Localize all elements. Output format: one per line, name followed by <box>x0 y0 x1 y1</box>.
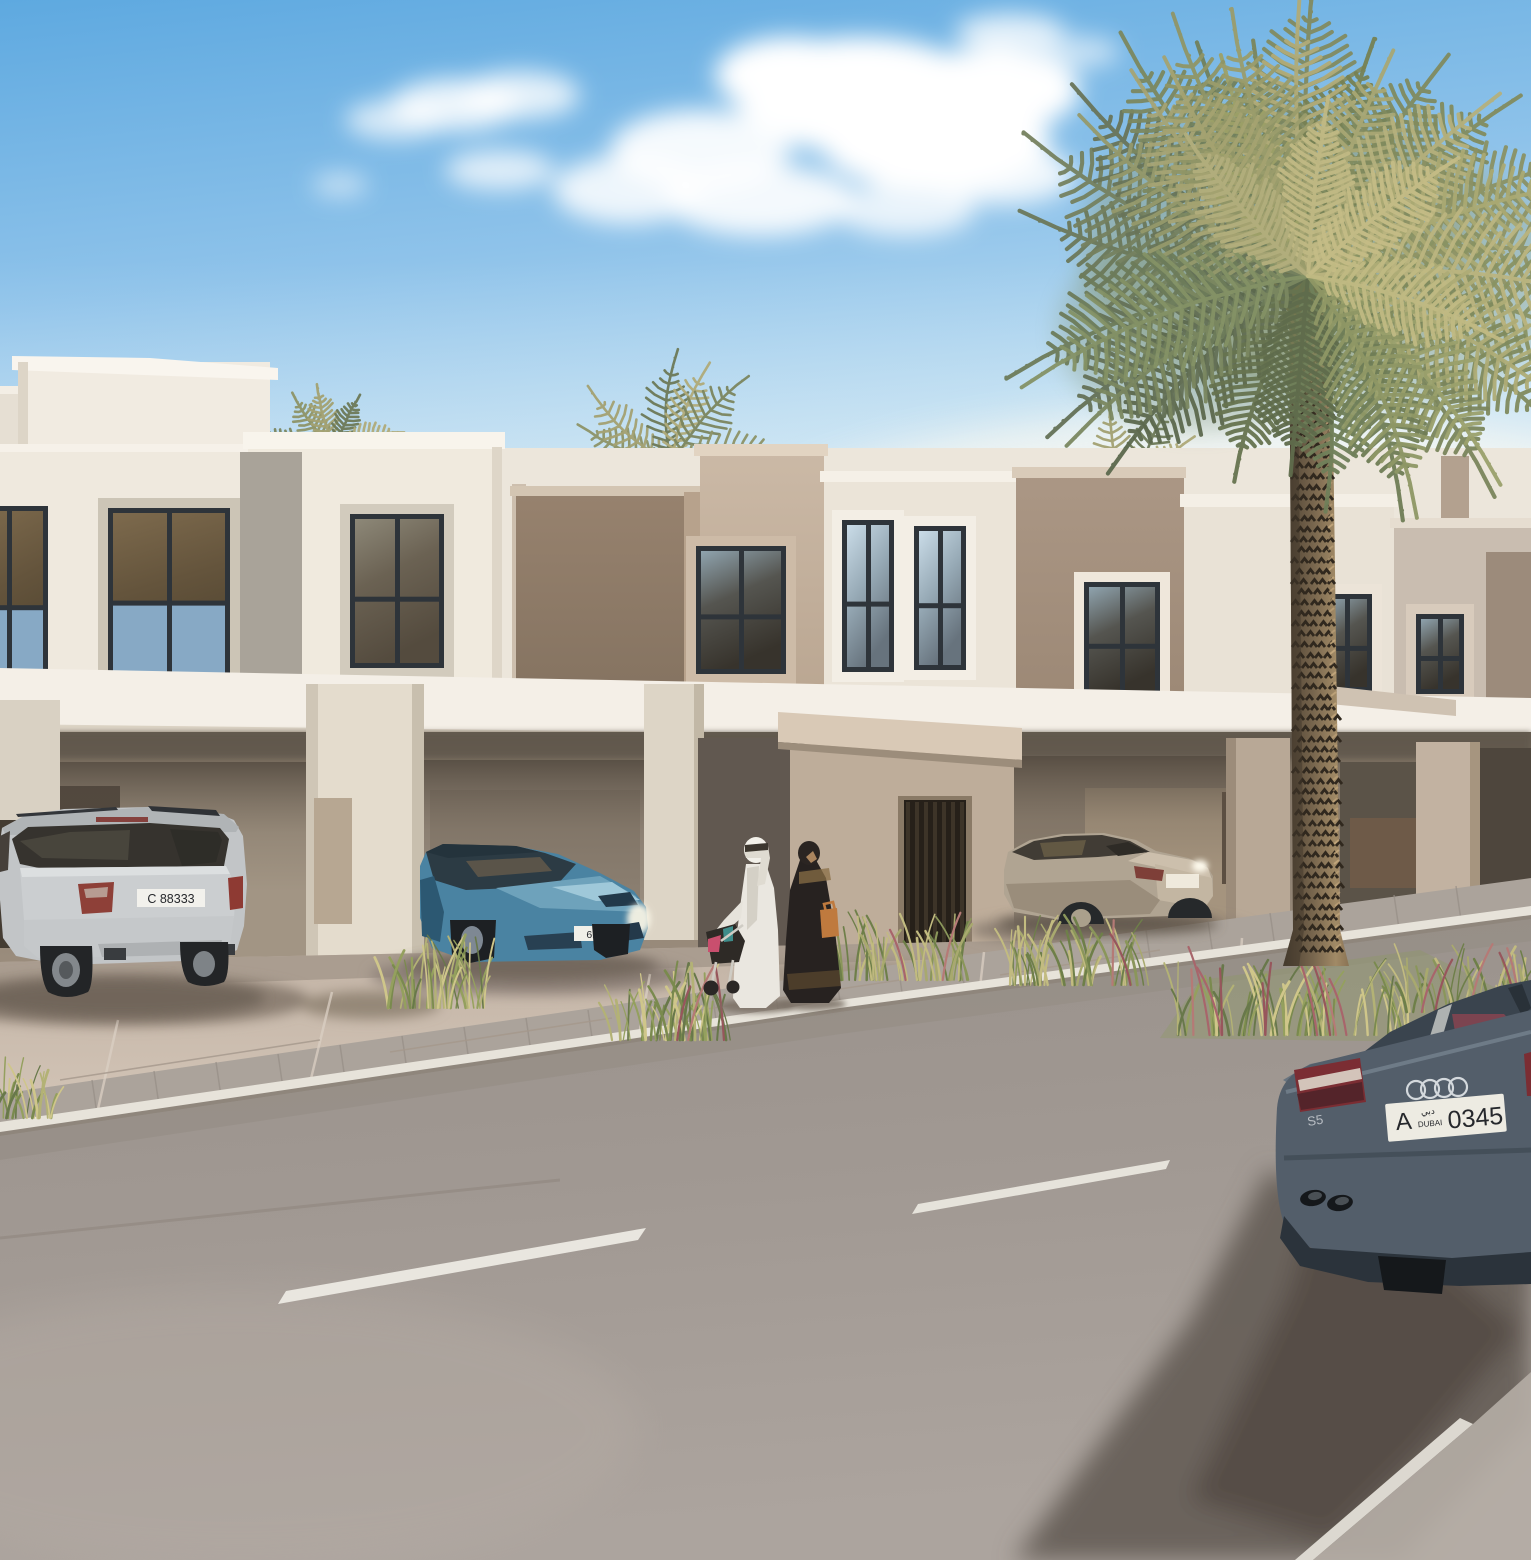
svg-text:دبي: دبي <box>1420 1106 1435 1117</box>
svg-text:S5: S5 <box>1306 1112 1324 1129</box>
svg-text:C 88333: C 88333 <box>147 892 194 906</box>
svg-text:A: A <box>1394 1108 1412 1136</box>
svg-text:0345: 0345 <box>1446 1102 1504 1135</box>
